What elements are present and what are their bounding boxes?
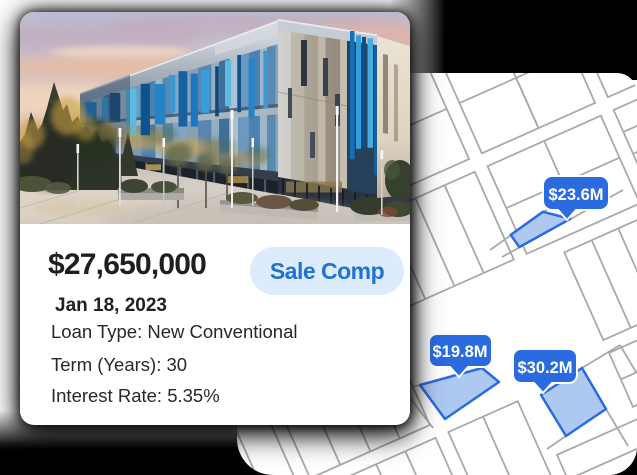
svg-text:$23.6M: $23.6M	[548, 186, 603, 204]
svg-text:$30.2M: $30.2M	[517, 359, 572, 377]
svg-text:$19.8M: $19.8M	[432, 343, 487, 361]
